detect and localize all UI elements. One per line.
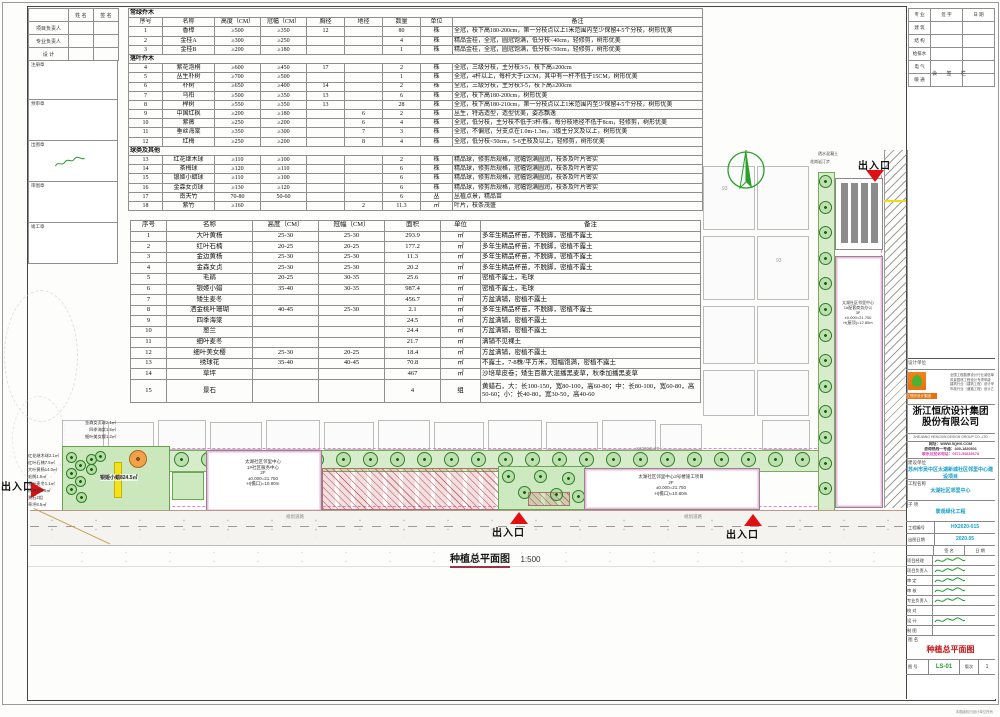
drawing-name: 种植总平面图 <box>906 644 995 655</box>
paving-hatch <box>528 492 570 506</box>
tree-icon <box>819 329 832 342</box>
entrance-arrow-icon <box>744 514 762 526</box>
signature-rows: 项目经理项目负责人审 定审 核专业负责人校 对设 计制 图 <box>906 556 995 636</box>
tree-icon <box>417 452 432 467</box>
tree-icon <box>534 470 547 483</box>
tree-icon <box>86 464 97 475</box>
area-label: 草坪8.5㎡ <box>28 501 59 508</box>
field-value: 太湖社区邻里中心 <box>906 488 995 495</box>
plant-row: 18紫竹≥160211.3㎡叶片，枝条茂盛 <box>129 201 703 210</box>
plant-row: 11垂丝海棠≥350≥30073株全冠，不偏冠，分支点在1.0m-1.3m，3级… <box>129 128 703 137</box>
tree-icon <box>687 452 702 467</box>
tree-icon <box>633 452 648 467</box>
signature-role: 制 图 <box>906 626 933 635</box>
tree-icon <box>550 488 563 501</box>
plant-row: 9中国红枫≥200≥18062株丛生，特选造型，造型优美，姿态飘逸 <box>129 110 703 119</box>
project-field: 子 项景观绿化工程 <box>906 501 995 522</box>
project-fields-inline: 工程编号HX2020-015出图日期2020.05 <box>906 522 995 546</box>
parking-area <box>835 178 883 250</box>
context-building <box>703 370 755 416</box>
plant-row: 2金桂A≥300≥2504株精品金桂，全冠，圆冠饱满，低分枝<40cm，轻修剪，… <box>129 36 703 45</box>
signoff-caption: 会 签 栏 <box>908 70 994 77</box>
plant-row: 14茶梅球≥120≥1106株精品球，修剪后规格，冠幅饱满圆润，枝条及叶片密实 <box>129 165 703 174</box>
entrance-arrow-icon <box>510 512 528 524</box>
design-unit-label: 设计单位 <box>906 359 995 367</box>
tree-icon <box>819 457 832 470</box>
company-name-en: ZHEJIANG HENGXIN DESIGN GROUP CO.,LTD <box>913 435 987 439</box>
signature-row: 审 定 <box>906 576 995 586</box>
context-building <box>488 420 542 450</box>
plant-row: 1香樟≥500≥3501280株全冠，枝下高180-200cm，第一分枝点以上1… <box>129 27 703 36</box>
tree-icon <box>75 460 86 471</box>
context-building <box>546 422 598 450</box>
tree-icon <box>471 452 486 467</box>
tree-icon <box>363 452 378 467</box>
area-label: 毛鹃1.5㎡ <box>28 473 59 480</box>
material-label: 花岗岩汀步 <box>810 159 830 165</box>
signature-role: 项目负责人 <box>906 566 933 575</box>
signature-row: 项目经理 <box>906 556 995 566</box>
boundary-line <box>62 448 882 449</box>
planting-bed <box>172 472 204 500</box>
cert-line: 市政行业（道路工程）设计乙级 <box>950 387 994 392</box>
field-label: 建设单位 <box>906 459 995 467</box>
context-building <box>378 420 430 450</box>
tree-icon <box>741 452 756 467</box>
stamp-label: 出图章 <box>31 142 45 148</box>
signature-row: 设 计 <box>906 616 995 626</box>
signature-role: 审 核 <box>906 586 933 595</box>
project-fields: 建设单位苏州市吴中区太湖新城社区邻里中心建设项目工程名称太湖社区邻里中心子 项景… <box>906 459 995 522</box>
signature-row: 项目负责人 <box>906 566 995 576</box>
tree-icon <box>75 476 86 487</box>
block-number: 93 <box>776 258 782 264</box>
header-row: 专 业签 字日 期 <box>909 9 995 22</box>
groundcover-row: 8洒金桃叶珊瑚40-4525-302.1㎡多年生精品杯苗，不脱脚，密植不露土 <box>131 305 701 316</box>
leaf-icon <box>912 375 922 387</box>
area-label: 绣球花8.5㎡ <box>28 487 59 494</box>
tree-icon <box>518 486 531 499</box>
stamp-box: 出图章 <box>28 141 118 182</box>
building-text-line: H(屋顶)=12.80m <box>837 320 879 325</box>
tree-icon <box>819 380 832 393</box>
groundcover-row: 3金边黄杨25-3025-3011.3㎡多年生精品杯苗，不脱脚，密植不露土 <box>131 252 701 263</box>
company-name-cn2: 股份有限公司 <box>906 418 995 429</box>
section-title-row: 球类及其他 <box>129 146 703 155</box>
tree-icon <box>444 452 459 467</box>
groundcover-row: 11细叶麦冬21.7㎡满铺不见裸土 <box>131 337 701 348</box>
signature-cell <box>933 576 995 585</box>
groundcover-row: 13绣球花35-4040-4570.8㎡不露土，7-8株/平方米，冠幅饱满，密植… <box>131 358 701 369</box>
context-building <box>703 306 755 364</box>
tree-icon <box>795 452 810 467</box>
tree-icon <box>336 452 351 467</box>
paving-hatch <box>322 468 500 510</box>
stamp-label: 注册章 <box>31 62 45 68</box>
signature-row: 制 图 <box>906 626 995 636</box>
plan-title: 种植总平面图 1:500 <box>450 549 540 567</box>
signature-cell <box>933 626 995 635</box>
utility-mark <box>884 200 906 202</box>
building-c-label: 太湖社区邻里中心1#配套商务办公3F±0.000=21.750H(屋顶)=12.… <box>837 300 879 325</box>
signoff-row: 给排水 <box>909 48 995 61</box>
tree-icon <box>819 431 832 444</box>
left-signature-panel: 姓 名签 名项目负责人专业负责人设 计注册章预审章出图章审图章竣工章 <box>28 8 118 260</box>
context-building <box>210 422 262 450</box>
context-building <box>757 306 809 364</box>
signature-row: 校 对 <box>906 606 995 616</box>
tree-icon <box>606 452 621 467</box>
tree-icon <box>562 472 575 485</box>
road-dots <box>30 516 906 538</box>
field-label: 出图日期 <box>906 534 935 545</box>
certificate-lines: 全国工程勘察设计行业诚信单位风景园林工程设计专项甲级建筑行业（建筑工程）设计甲级… <box>950 373 994 391</box>
signature-row: 专业负责人 <box>906 596 995 606</box>
groundcover-row: 10葱兰24.4㎡方盆满铺，密植不露土 <box>131 326 701 337</box>
rev-label: 版次 <box>960 660 979 674</box>
tree-icon <box>76 492 87 503</box>
groundcover-row: 12细叶美女樱25-3020-2518.4㎡方盆满铺，密植不露土 <box>131 348 701 359</box>
groundcover-row: 7矮生麦冬456.7㎡方盆满铺，密植不露土 <box>131 295 701 306</box>
signature-role: 审 定 <box>906 576 933 585</box>
sign-row: 专业负责人 <box>29 35 119 48</box>
plant-row: 16金森女贞球≥130≥1206株精品球，修剪后规格，冠幅饱满圆润，枝条及叶片密… <box>129 183 703 192</box>
road-name: 规划道路 <box>684 514 702 520</box>
table-header-row: 序号名称高度（CM）冠幅（CM）面积单位备注 <box>131 221 701 232</box>
tree-icon <box>819 175 832 188</box>
plant-row: 7乌桕≥500≥350136株全冠，枝下高180-200cm，树形优美 <box>129 91 703 100</box>
tree-icon <box>819 201 832 214</box>
signature-cell <box>933 596 995 605</box>
field-label: 子 项 <box>906 501 995 509</box>
company-info: 网址：WWW.5QHX.COM咨询热线一号通：400-1820501联系及投诉电… <box>906 442 995 459</box>
header-row: 姓 名签 名 <box>29 9 119 22</box>
plant-row: 10紫薇≥250≥20064株全冠，低分枝，主分枝不低于3杆/株，每分枝地径不低… <box>129 119 703 128</box>
groundcover-row: 4金森女贞25-3025-3020.2㎡多年生精品杯苗，不脱脚，密植不露土 <box>131 263 701 274</box>
context-building <box>703 236 755 300</box>
plan-scale: 1:500 <box>520 555 540 564</box>
context-building <box>324 422 374 450</box>
groundcover-row: 1大叶黄杨25-3025-30293.9㎡多年生精品杯苗，不脱脚，密植不露土 <box>131 231 701 242</box>
area-labels-top: 金森女贞球2.1㎡四季海棠1.5㎡细叶美女樱1.2㎡ <box>46 419 116 440</box>
existing-building-hatch <box>884 150 908 508</box>
context-building <box>434 422 484 450</box>
area-label: 细叶麦冬1.1㎡ <box>28 480 59 487</box>
signoff-row: 建 筑 <box>909 22 995 35</box>
plant-row: 13红花继木球≥110≥1002株精品球，修剪后规格，冠幅饱满圆润，枝条及叶片密… <box>129 156 703 165</box>
plant-row: 15银姬小蜡球≥110≥1006株精品球，修剪后规格，冠幅饱满圆润，枝条及叶片密… <box>129 174 703 183</box>
tree-icon <box>819 252 832 265</box>
field-value: HX2020-015 <box>935 524 995 531</box>
field-value: 景观绿化工程 <box>906 509 995 516</box>
building-text-line: H(檐口)=10.80m <box>604 491 738 497</box>
section-title-row: 落叶乔木 <box>129 54 703 63</box>
signoff-row: 结 构 <box>909 35 995 48</box>
building-a-label: 太湖社区邻里中心1#社区服务中心2F±0.000=21.750H(檐口)=10.… <box>216 459 310 487</box>
area-label: 大叶黄杨14.0㎡ <box>28 466 59 473</box>
sign-header-row: 签 名 日 期 <box>906 546 995 556</box>
field-value: 2020.05 <box>935 536 995 543</box>
tree-icon <box>502 470 515 483</box>
drawing-sheet: { "sheet": { "left_panel": { "headers": … <box>0 0 1000 706</box>
field-label: 工程名称 <box>906 480 995 488</box>
tree-icon <box>390 452 405 467</box>
building-c <box>835 256 883 508</box>
groundcover-schedule-table: 序号名称高度（CM）冠幅（CM）面积单位备注1大叶黄杨25-3025-30293… <box>130 220 701 403</box>
tree-icon <box>498 452 513 467</box>
plant-row: 12红梅≥250≥20084株全冠，低分枝<50cm，5-6主枝及以上，轻修剪，… <box>129 137 703 146</box>
feature-tree-icon <box>129 450 147 468</box>
groundcover-row: 6银姬小蜡35-4030-35987.4㎡密植不露土，毛球 <box>131 284 701 295</box>
plant-row: 4紫花泡桐≥600≥450172株全冠，三级分枝，主分枝3-5，枝下高≥200c… <box>129 64 703 73</box>
context-building <box>762 420 810 450</box>
tree-icon <box>819 303 832 316</box>
tree-icon <box>174 452 189 467</box>
area-labels-left: 红花继木球2.1㎡红叶石楠7.5㎡大叶黄杨14.0㎡毛鹃1.5㎡细叶麦冬1.1㎡… <box>28 452 59 508</box>
area-label: 景石2组 <box>28 494 59 501</box>
context-building <box>757 370 809 416</box>
context-building <box>660 424 702 450</box>
context-building <box>757 236 809 300</box>
stamp-box: 审图章 <box>28 182 118 223</box>
stamp-box: 注册章 <box>28 61 118 100</box>
signature-role: 专业负责人 <box>906 596 933 605</box>
entrance-label: 出入口 <box>492 524 525 539</box>
project-field: 工程编号HX2020-015 <box>906 522 995 534</box>
material-label: 透水混凝土 <box>818 151 838 157</box>
section-title-row: 常绿乔木 <box>129 9 703 18</box>
logo-banner: 浙江恒欣设计集团 <box>906 393 937 399</box>
groundcover-row: 9四季海棠24.5㎡方盆满铺，密植不露土 <box>131 316 701 327</box>
signature-cell <box>933 556 995 565</box>
north-arrow-icon <box>724 142 768 202</box>
hotline-line: 联系及投诉电话：0571-56835678 <box>906 452 995 457</box>
entrance-arrow-icon <box>866 170 884 182</box>
area-label: 红叶石楠7.5㎡ <box>28 459 59 466</box>
sign-row: 设 计 <box>29 48 119 61</box>
field-value: 苏州市吴中区太湖新城社区邻里中心建设项目 <box>906 467 995 480</box>
groundcover-row: 5毛鹃20-2530-3525.6㎡密植不露土，毛球 <box>131 273 701 284</box>
tree-icon <box>525 452 540 467</box>
groundcover-row: 15景石4组黄蜡石，大：长100-150，宽80-100，高60-80；中：长8… <box>131 379 701 402</box>
drawing-no-label: 图 号 <box>906 664 928 670</box>
copyright-note: 本图版权归设计单位所有 <box>906 709 995 717</box>
entrance-label: 出入口 <box>726 526 759 541</box>
area-label: 细叶美女樱1.2㎡ <box>46 433 116 440</box>
drawing-name-label: 图 名 <box>906 636 995 644</box>
groundcover-row: 2红叶石楠20-2520-25177.2㎡多年生精品杯苗，不脱脚，密植不露土 <box>131 242 701 253</box>
company-logo-icon <box>908 372 926 390</box>
signature-role: 设 计 <box>906 616 933 625</box>
signature-cell <box>933 566 995 575</box>
signature-cell <box>933 606 995 615</box>
context-building <box>266 420 320 450</box>
tree-icon <box>552 452 567 467</box>
area-label: 红花继木球2.1㎡ <box>28 452 59 459</box>
plant-row: 8榉树≥550≥3501328株全冠，枝下高180-210cm，第一分枝点以上1… <box>129 100 703 109</box>
tree-icon <box>66 484 77 495</box>
area-label: 金森女贞球2.1㎡ <box>46 419 116 426</box>
signature-role: 项目经理 <box>906 556 933 565</box>
road-name: 规划道路 <box>286 514 304 520</box>
building-b-label: 太湖社区邻里中心3号楼施工项目2F±0.000=21.750H(檐口)=10.8… <box>604 474 738 496</box>
plant-row: 17南天竹70-8050-606丛丛植点景，精品苗 <box>129 192 703 201</box>
tree-icon <box>714 452 729 467</box>
plant-schedule-table: 常绿乔木序号名称高度（CM）冠幅（CM）胸径地径数量单位备注1香樟≥500≥35… <box>128 8 703 211</box>
project-field: 出图日期2020.05 <box>906 534 995 546</box>
plant-row: 3金桂B≥200≥1801株精品金桂，全冠，圆冠饱满，低分枝<50cm，轻修剪，… <box>129 45 703 54</box>
cert-line: 全国工程勘察设计行业诚信单位 <box>950 373 994 378</box>
plant-row: 6朴树≥650≥400142株全冠，三级分枝，主分枝3-5，枝下高≥200cm <box>129 82 703 91</box>
signature-role: 校 对 <box>906 606 933 615</box>
field-label: 工程编号 <box>906 522 935 533</box>
table-header-row: 序号名称高度（CM）冠幅（CM）胸径地径数量单位备注 <box>129 18 703 27</box>
area-label: 四季海棠1.5㎡ <box>46 426 116 433</box>
building-text-line: H(檐口)=10.80m <box>216 481 310 487</box>
tree-icon <box>579 452 594 467</box>
stamp-label: 竣工章 <box>31 224 45 230</box>
project-field: 建设单位苏州市吴中区太湖新城社区邻里中心建设项目 <box>906 459 995 480</box>
sign-row: 项目负责人 <box>29 22 119 35</box>
signature-row: 审 核 <box>906 586 995 596</box>
stamp-signature <box>52 150 89 175</box>
drawing-no: LS-01 <box>928 660 960 674</box>
signature-cell <box>933 616 995 625</box>
stamp-label: 审图章 <box>31 183 45 189</box>
signature-cell <box>933 586 995 595</box>
groundcover-row: 14草坪467㎡沙培草皮卷；矮生百慕大混播黑麦草，秋季加播黑麦草 <box>131 369 701 380</box>
stamp-box: 竣工章 <box>28 223 118 264</box>
project-field: 工程名称太湖社区邻里中心 <box>906 480 995 501</box>
company-name-cn: 浙江恒欣设计集团 <box>906 407 995 418</box>
tree-icon <box>95 451 106 462</box>
tree-icon <box>660 452 675 467</box>
stamp-box: 预审章 <box>28 100 118 141</box>
left-panel-table: 姓 名签 名项目负责人专业负责人设 计 <box>28 8 119 61</box>
rev-value: 1 <box>979 664 995 670</box>
tree-icon <box>768 452 783 467</box>
survey-ref-label: X3376Q-2B <box>636 446 660 451</box>
area-label-mid: 银姬小蜡824.5㎡ <box>100 474 138 481</box>
title-block: 设计单位 浙江恒欣设计集团 全国工程勘察设计行业诚信单位风景园林工程设计专项甲级… <box>906 358 995 701</box>
plan-title-text: 种植总平面图 <box>450 554 510 568</box>
plant-row: 5丛生朴树≥700≥5001株全冠，4杆以上，每杆大于12CM，其中有一杆不低于… <box>129 73 703 82</box>
stamp-label: 预审章 <box>31 101 45 107</box>
